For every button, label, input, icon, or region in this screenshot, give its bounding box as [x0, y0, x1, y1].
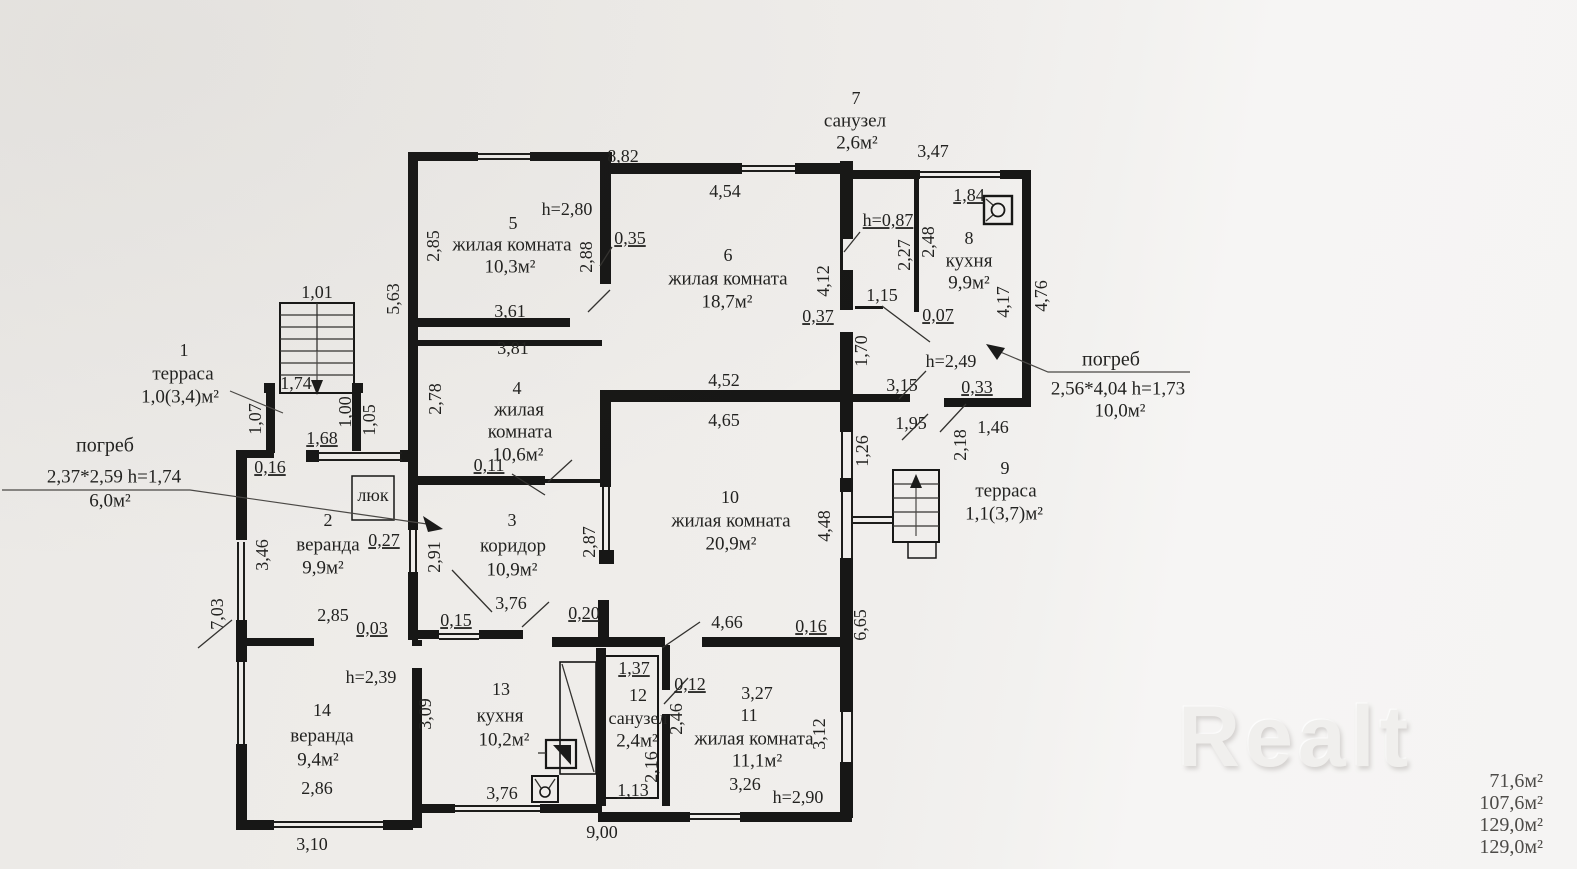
dimension-label: 7,03	[207, 598, 227, 630]
room-number: 10	[721, 487, 739, 507]
dimension-label: 0,33	[961, 377, 993, 397]
dimension-label: 0,11	[474, 455, 505, 475]
dimension-label: 3,76	[486, 783, 518, 803]
dimension-label: 2,16	[641, 751, 661, 783]
dimension-label: 1,00	[335, 396, 355, 428]
dimension-label: 4,54	[709, 181, 741, 201]
room-name: санузел	[609, 708, 668, 728]
dimension-label: 0,16	[254, 457, 286, 477]
room-area: 9,4м²	[297, 749, 339, 770]
cellar-area: 10,0м²	[1095, 400, 1146, 421]
dimension-label: 4,12	[813, 265, 833, 297]
room-area: 1,0(3,4)м²	[141, 386, 219, 407]
dimension-label: 4,65	[708, 410, 740, 430]
dimension-label: 1,05	[359, 404, 379, 436]
dimension-label: 1,13	[617, 780, 649, 800]
ceiling-height: h=2,90	[773, 787, 824, 807]
room-area: 10,2м²	[479, 729, 530, 750]
room-number: 14	[313, 700, 331, 720]
dimension-label: 1,68	[306, 428, 338, 448]
dimension-label: 1,46	[977, 417, 1009, 437]
dimension-label: 2,78	[425, 383, 445, 415]
dimension-label: 2,18	[950, 429, 970, 461]
dimension-label: 1,84	[953, 185, 985, 205]
total-area-value: 129,0м²	[1479, 814, 1543, 836]
room-area: 10,3м²	[485, 256, 536, 277]
dimension-label: 3,27	[741, 683, 773, 703]
dimension-label: 1,70	[851, 335, 871, 367]
room-number: 4	[513, 378, 522, 398]
ceiling-height: h=0,87	[863, 210, 914, 230]
dimension-label: 0,03	[356, 618, 388, 638]
room-area: 11,1м²	[732, 750, 783, 771]
cellar-size: 2,37*2,59 h=1,74	[47, 466, 182, 487]
dimension-label: 0,12	[674, 674, 706, 694]
dimension-label: 2,85	[423, 230, 443, 262]
room-number: 12	[629, 685, 647, 705]
dimension-label: 1,15	[866, 285, 898, 305]
dimension-label: 0,20	[568, 603, 600, 623]
room-area: 9,9м²	[302, 557, 344, 578]
dimension-label: 1,07	[245, 403, 265, 435]
dimension-label: 0,37	[802, 306, 834, 326]
dimension-label: 4,52	[708, 370, 740, 390]
room-area: 10,9м²	[487, 559, 538, 580]
staircase-right	[893, 470, 939, 558]
cellar-label: погреб	[1082, 349, 1140, 371]
dimension-label: 3,10	[296, 834, 328, 854]
dimension-label: 9,00	[586, 822, 618, 842]
ceiling-height: h=2,80	[542, 199, 593, 219]
room-number: 8	[965, 228, 974, 248]
dimension-label: 2,27	[894, 239, 914, 271]
dimension-label: 3,61	[494, 301, 526, 321]
room-name: терраса	[975, 480, 1037, 501]
dimension-label: 3,47	[917, 141, 949, 161]
room-area: 2,6м²	[836, 132, 878, 153]
hatch-label: люк	[357, 485, 388, 505]
dimension-label: 4,76	[1031, 280, 1051, 312]
scanned-floor-plan-page: 8,827санузел2,6м²3,474,541,84h=2,805h=0,…	[0, 0, 1577, 869]
dimension-label: 0,27	[368, 530, 400, 550]
dimension-label: 0,15	[440, 610, 472, 630]
dimension-label: 2,46	[666, 703, 686, 735]
room-number: 1	[180, 340, 189, 360]
room-number: 13	[492, 679, 510, 699]
room-number: 2	[324, 510, 333, 530]
room-number: 9	[1001, 458, 1010, 478]
dimension-label: 1,37	[618, 658, 650, 678]
dimension-label: 5,63	[383, 283, 403, 315]
realt-watermark: Realt	[1178, 694, 1558, 780]
dimension-label: 6,65	[850, 609, 870, 641]
dimension-label: 0,16	[795, 616, 827, 636]
room-name: санузел	[824, 110, 887, 131]
total-area-value: 129,0м²	[1479, 836, 1543, 858]
dimension-label: 4,66	[711, 612, 743, 632]
dimension-label: 2,85	[317, 605, 349, 625]
room-area: 1,1(3,7)м²	[965, 503, 1043, 524]
dimension-label: 1,26	[852, 435, 872, 467]
kitchen-13-sink-icon	[532, 776, 558, 802]
room-name: комната	[488, 421, 553, 442]
dimension-label: 1,01	[301, 282, 333, 302]
room-name: кухня	[946, 250, 993, 271]
room-name: терраса	[152, 363, 214, 384]
dimension-label: 4,17	[993, 286, 1013, 318]
dimension-label: 3,76	[495, 593, 527, 613]
room-name: жилая комната	[670, 510, 791, 531]
total-area-value: 107,6м²	[1479, 792, 1543, 814]
cellar-size: 2,56*4,04 h=1,73	[1051, 378, 1185, 399]
room-number: 11	[740, 705, 757, 725]
dimension-label: 3,09	[415, 698, 435, 730]
kitchen-8-sink-icon	[984, 196, 1012, 224]
dimension-label: 3,26	[729, 774, 761, 794]
total-area-value: 71,6м²	[1479, 770, 1543, 792]
dimension-label: 3,15	[886, 375, 918, 395]
dimension-label: 1,95	[895, 413, 927, 433]
room-name: веранда	[290, 725, 354, 746]
room-number: 5	[509, 213, 518, 233]
ceiling-height: h=2,49	[926, 351, 977, 371]
dimension-label: 1,74	[280, 373, 312, 393]
room-name: жилая комната	[667, 268, 788, 289]
room-name: кухня	[477, 705, 524, 726]
stairs-up-arrow-icon	[910, 474, 922, 488]
dimension-label: 4,48	[814, 510, 834, 542]
room-number: 6	[724, 245, 733, 265]
total-areas: 71,6м²107,6м²129,0м²129,0м²	[1479, 770, 1543, 858]
room-name: веранда	[296, 534, 360, 555]
dimension-label: 0,07	[922, 305, 954, 325]
dimension-label: 8,82	[607, 146, 639, 166]
ceiling-height: h=2,39	[346, 667, 397, 687]
room-name: коридор	[480, 535, 546, 556]
cellar-label: погреб	[76, 435, 134, 457]
room-number: 7	[852, 88, 861, 108]
cellar-area: 6,0м²	[89, 490, 131, 511]
room-area: 9,9м²	[948, 272, 990, 293]
dimension-label: 0,35	[614, 228, 646, 248]
dimension-label: 2,87	[579, 526, 599, 558]
dimension-label: 2,91	[424, 541, 444, 573]
room-area: 20,9м²	[706, 533, 757, 554]
dimension-label: 3,81	[497, 338, 529, 358]
room-number: 3	[508, 510, 517, 530]
labels-layer: 8,827санузел2,6м²3,474,541,84h=2,805h=0,…	[47, 88, 1185, 854]
dimension-label: 2,48	[918, 226, 938, 258]
room-area: 18,7м²	[702, 291, 753, 312]
room-area: 2,4м²	[616, 730, 658, 751]
room-name: жилая	[493, 399, 544, 420]
dimension-label: 2,88	[576, 241, 596, 273]
kitchen-13-stove-icon	[538, 740, 576, 768]
room-name: жилая комната	[693, 728, 814, 749]
dimension-label: 3,46	[252, 539, 272, 571]
dimension-label: 2,86	[301, 778, 333, 798]
room-name: жилая комната	[451, 234, 572, 255]
